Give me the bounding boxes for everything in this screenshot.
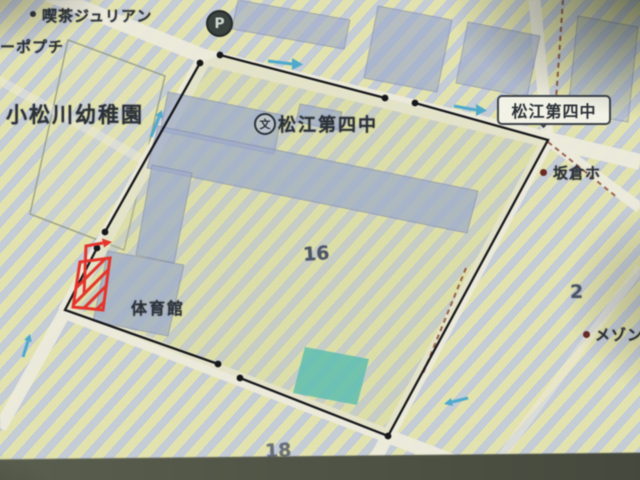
school-label: 松江第四中 <box>278 111 378 137</box>
sakakura-poi-dot <box>540 169 547 176</box>
block-number-2: 2 <box>570 281 583 303</box>
block-number-16: 16 <box>302 242 330 266</box>
gym-label: 体育館 <box>131 295 185 319</box>
maison-label: メゾン <box>595 324 640 345</box>
kindergarten-label: 小松川幼稚園 <box>6 99 144 129</box>
maison-poi-dot <box>583 331 590 338</box>
map-photo: 喫茶ジュリアン ーポプチ 小松川幼稚園 文 松江第四中 P 体育館 坂倉ホ メゾ… <box>0 0 640 480</box>
school-symbol-icon: 文 <box>254 113 276 135</box>
sakakura-label: 坂倉ホ <box>553 162 601 183</box>
school-callout: 松江第四中 <box>497 95 611 125</box>
parking-icon: P <box>206 10 233 37</box>
building-top-2 <box>364 6 452 92</box>
building-top-1 <box>232 0 350 49</box>
map-graphics <box>0 0 640 480</box>
cafe-label: 喫茶ジュリアン <box>42 5 152 26</box>
popuchi-label: ーポプチ <box>0 36 64 57</box>
building-top-3 <box>456 22 540 97</box>
map-layer: 喫茶ジュリアン ーポプチ 小松川幼稚園 文 松江第四中 P 体育館 坂倉ホ メゾ… <box>0 0 640 480</box>
cafe-poi-dot <box>30 11 36 17</box>
